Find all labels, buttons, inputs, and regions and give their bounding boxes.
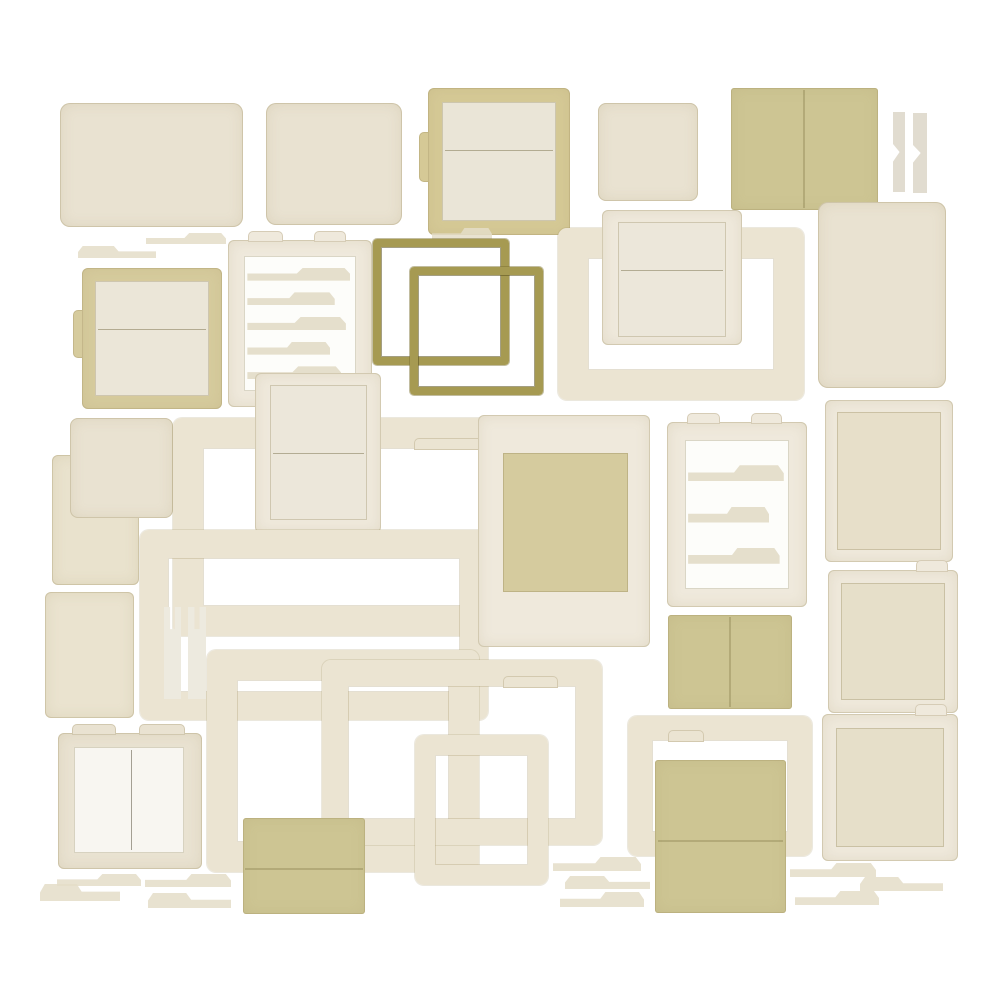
folder-tab xyxy=(668,730,703,742)
folder-tab xyxy=(751,413,782,424)
die-cut-tab xyxy=(247,317,346,330)
book-pages xyxy=(74,747,184,853)
folded-paper-1 xyxy=(731,88,878,210)
book-spine xyxy=(131,750,132,850)
paper-sheet-2 xyxy=(45,592,134,718)
card-large-1 xyxy=(60,103,243,227)
die-cut-tab xyxy=(688,465,784,481)
tab-strip-7 xyxy=(553,857,641,871)
folder-tab xyxy=(73,310,83,358)
tab-strip-12 xyxy=(795,891,879,905)
tab-strip-1 xyxy=(146,233,226,244)
tab-strip-8 xyxy=(565,876,650,889)
tab-strip-11 xyxy=(860,877,943,891)
card-large-2 xyxy=(266,103,402,225)
die-cut-tab xyxy=(247,292,334,305)
folder-tab xyxy=(503,676,558,688)
ephemera-collage-photo xyxy=(0,0,1000,1000)
framed-panel-4 xyxy=(828,570,958,713)
photo-window xyxy=(618,222,726,337)
book-frame-1 xyxy=(58,733,202,869)
framed-panel-2 xyxy=(82,268,222,409)
framed-panel-5 xyxy=(822,714,958,861)
fold-crease xyxy=(729,617,731,707)
folder-tab xyxy=(419,132,429,182)
tab-strip-2 xyxy=(78,246,156,258)
folded-paper-3 xyxy=(243,818,365,914)
die-cut-tab xyxy=(688,507,769,523)
tabbed-sheet-2 xyxy=(667,422,807,607)
photo-card-2 xyxy=(478,415,650,647)
folder-tab xyxy=(72,724,115,735)
photo-crease xyxy=(621,270,723,271)
bookmark-strip-1 xyxy=(893,112,905,192)
card-square-1 xyxy=(598,103,698,201)
inner-panel xyxy=(836,728,944,847)
framed-panel-1 xyxy=(428,88,570,235)
photo-frame-small-1 xyxy=(415,735,548,885)
inner-panel xyxy=(841,583,945,700)
folder-tab xyxy=(687,413,721,424)
folder-tab xyxy=(314,231,346,242)
fold-crease xyxy=(245,868,362,870)
tab-strip-5 xyxy=(145,874,231,887)
panel-divider xyxy=(98,329,205,330)
fold-crease xyxy=(658,840,784,842)
square-frame-2 xyxy=(410,267,543,395)
photo-card-1 xyxy=(602,210,742,345)
inner-panel xyxy=(442,102,556,221)
photo-window xyxy=(270,385,367,520)
folder-tab xyxy=(248,231,283,242)
photo-crease xyxy=(273,453,364,454)
folder-tab xyxy=(916,560,947,572)
die-cut-tab xyxy=(688,548,780,564)
sheet-interior xyxy=(685,440,789,589)
tab-strip-10 xyxy=(790,863,876,877)
card-tall-1 xyxy=(818,202,946,388)
sheet-interior xyxy=(244,256,356,391)
tab-strip-9 xyxy=(560,892,644,907)
folded-paper-4 xyxy=(655,760,786,913)
folder-tab xyxy=(139,724,185,735)
tab-strip-6 xyxy=(148,893,231,908)
photo-window xyxy=(503,453,628,592)
die-cut-tab xyxy=(247,342,330,355)
card-square-2 xyxy=(70,418,173,518)
die-cut-tab xyxy=(247,268,350,281)
fold-crease xyxy=(803,90,805,207)
inner-panel xyxy=(837,412,941,550)
tab-strip-4 xyxy=(40,884,120,901)
panel-divider xyxy=(445,150,552,151)
inner-panel xyxy=(95,281,209,396)
folder-tab xyxy=(915,704,948,716)
framed-panel-3 xyxy=(825,400,953,562)
folded-paper-2 xyxy=(668,615,792,709)
photo-card-tall-1 xyxy=(255,373,381,533)
bookmark-strip-2 xyxy=(913,113,927,193)
